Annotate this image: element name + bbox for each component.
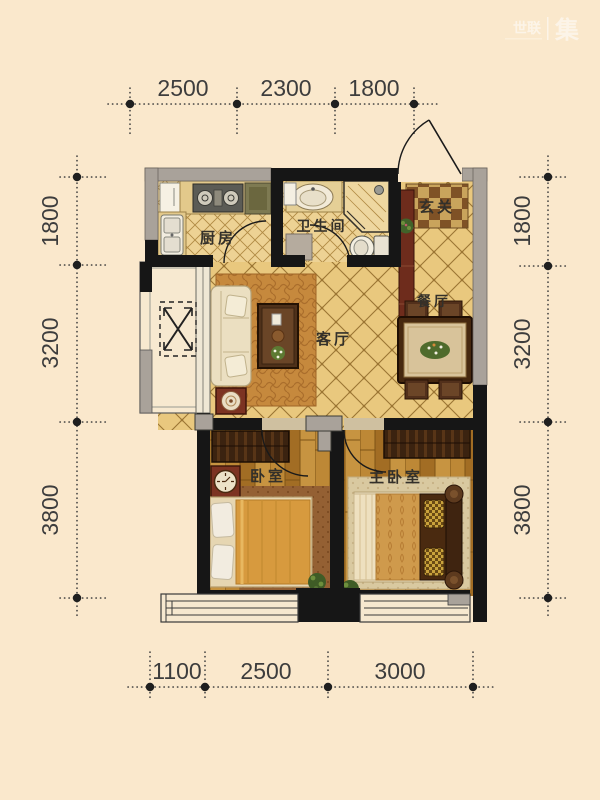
shower-head-icon bbox=[375, 186, 384, 195]
dining-label: 餐厅 bbox=[416, 293, 451, 310]
bay-gray-block bbox=[448, 594, 470, 605]
dining-chair bbox=[439, 380, 462, 399]
bedroom-bay-window bbox=[161, 594, 298, 622]
watermark-left-text: 世联 bbox=[513, 20, 542, 37]
dim-top-1: 2500 bbox=[157, 75, 208, 101]
side-table bbox=[216, 388, 246, 414]
master-door-sill bbox=[344, 418, 386, 430]
cup-icon bbox=[272, 314, 281, 325]
living-label: 客厅 bbox=[315, 330, 352, 348]
stove bbox=[193, 184, 243, 212]
right-wall-gray bbox=[473, 168, 487, 385]
balcony-gray-pier bbox=[140, 350, 152, 413]
top-wall-gray bbox=[145, 168, 271, 181]
sofa-pillow bbox=[225, 355, 248, 378]
dim-right-2: 3200 bbox=[509, 318, 535, 369]
master-bed bbox=[354, 485, 463, 589]
dim-bottom-1: 1100 bbox=[152, 658, 201, 684]
floor-plan: 世联 集 2500 2300 1800 1100 2500 3000 1800 … bbox=[0, 0, 600, 800]
pillow bbox=[424, 500, 444, 528]
dining-table bbox=[398, 317, 472, 383]
kitchen-label: 厨房 bbox=[200, 229, 236, 247]
fridge bbox=[160, 183, 180, 212]
door-pier bbox=[195, 414, 213, 430]
pillow bbox=[211, 544, 234, 579]
dim-right-3: 3800 bbox=[509, 484, 535, 535]
dim-top-2: 2300 bbox=[260, 75, 311, 101]
centerpiece-icon bbox=[420, 341, 450, 359]
entry-label: 玄关 bbox=[419, 198, 455, 216]
bathroom-basin-inner bbox=[300, 190, 326, 206]
dim-left-1: 1800 bbox=[37, 195, 63, 246]
sofa bbox=[211, 286, 251, 386]
floor-plan-page: 世联 集 2500 2300 1800 1100 2500 3000 1800 … bbox=[0, 0, 600, 800]
dim-right-1: 1800 bbox=[509, 195, 535, 246]
coffee-table bbox=[258, 304, 298, 368]
bathroom-cabinet bbox=[284, 183, 296, 205]
dim-left-2: 3200 bbox=[37, 317, 63, 368]
dim-bottom-2: 2500 bbox=[240, 658, 291, 684]
pillow bbox=[424, 548, 444, 576]
bedside-table bbox=[211, 466, 240, 497]
bedroom-label: 卧室 bbox=[250, 467, 286, 485]
watermark-right-text: 集 bbox=[554, 16, 580, 44]
door-pier bbox=[306, 416, 342, 431]
watermark-underline bbox=[505, 38, 542, 40]
bedroom-door-sill bbox=[262, 418, 308, 430]
watermark-divider bbox=[547, 17, 549, 40]
door-pier-stem bbox=[318, 431, 331, 451]
dining-area: 餐厅 bbox=[398, 293, 472, 399]
pillow bbox=[211, 502, 234, 537]
master-bay-window bbox=[360, 594, 470, 622]
flowers-icon bbox=[271, 346, 285, 360]
master-duvet bbox=[376, 494, 420, 580]
duvet bbox=[236, 500, 310, 584]
bed bbox=[210, 497, 312, 587]
sofa-pillow bbox=[225, 295, 248, 318]
bed-foot-fold bbox=[354, 494, 376, 580]
kitchen-cabinet-inner bbox=[249, 187, 267, 210]
plate-icon bbox=[272, 330, 284, 342]
kitchen-sink bbox=[158, 212, 186, 258]
dim-left-3: 3800 bbox=[37, 484, 63, 535]
dining-chair bbox=[405, 380, 428, 399]
bathroom-label: 卫生间 bbox=[297, 218, 348, 235]
balcony-bay bbox=[140, 262, 210, 413]
dim-top-3: 1800 bbox=[348, 75, 399, 101]
bathroom-basin-faucet bbox=[311, 187, 315, 191]
entry-door-opening bbox=[398, 166, 462, 182]
left-wall-gray bbox=[145, 168, 158, 240]
dim-bottom-3: 3000 bbox=[374, 658, 425, 684]
